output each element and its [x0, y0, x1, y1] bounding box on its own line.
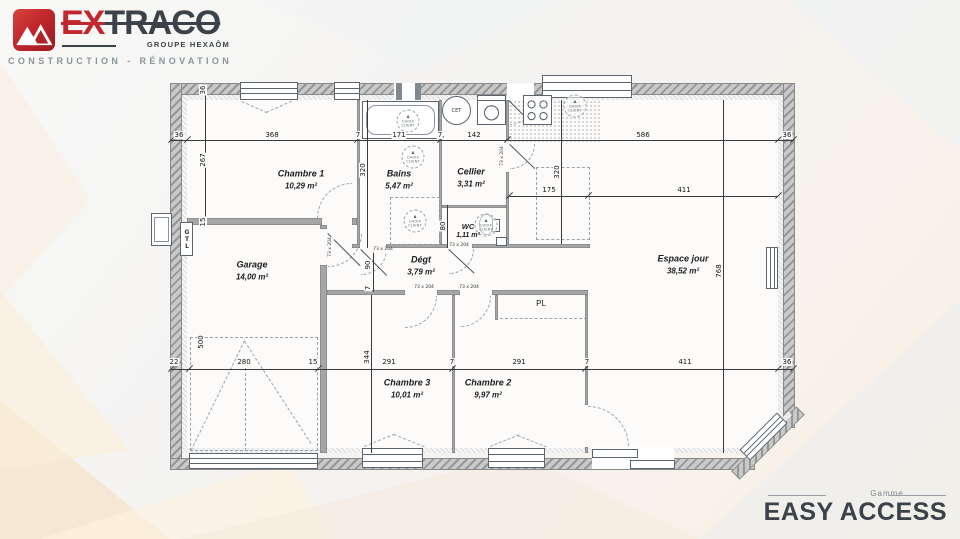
extraco-logo: EXTRACO GROUPE HEXAÔM CONSTRUCTION - RÉN…	[0, 0, 260, 75]
dim-label: 36	[782, 358, 793, 366]
gtl-box: GTL	[180, 222, 193, 256]
dim-label: 90	[364, 260, 372, 271]
wall-partition	[452, 295, 455, 453]
dim-line	[367, 100, 368, 248]
stove	[523, 95, 552, 125]
dim-label: 344	[363, 349, 371, 364]
dim-label: 171	[391, 131, 406, 139]
dim-line	[561, 100, 562, 244]
dim-label: 411	[676, 186, 691, 194]
room-label-espace-jour: Espace jour38,52 m²	[657, 252, 708, 275]
room-label-bains: Bains5,47 m²	[385, 167, 413, 190]
dim-line	[371, 295, 372, 453]
wall-partition	[437, 290, 460, 295]
room-label-degt: Dégt3,79 m²	[407, 253, 435, 276]
dim-label: 291	[381, 358, 396, 366]
window	[240, 82, 298, 100]
logo-mark-icon	[13, 9, 55, 51]
closet-front-dashed	[495, 318, 587, 319]
client-choice-marker: ▲CHOIXCLIENT	[564, 95, 587, 118]
dim-line	[373, 248, 374, 292]
dim-label: 7	[355, 131, 361, 139]
garage-door	[189, 453, 318, 469]
garage-door-centerline	[245, 363, 246, 451]
range-line	[768, 495, 826, 496]
door-size-label: 73 x 204	[329, 237, 334, 257]
brand-text: EXTRACO	[61, 6, 220, 40]
wall-insulation	[182, 95, 187, 453]
wall-exterior-left	[170, 83, 182, 470]
client-choice-marker: ▲CHOIXCLIENT	[404, 210, 427, 233]
wall-partition	[352, 218, 357, 225]
dim-label: 175	[541, 186, 556, 194]
wall-partition	[495, 295, 498, 320]
dim-label: 7	[437, 131, 443, 139]
client-choice-marker: ▲CHOIXCLIENT	[397, 110, 420, 133]
washing-machine	[477, 95, 506, 125]
dim-label: 320	[553, 164, 561, 179]
electric-meter-inner	[154, 217, 169, 242]
door-size-label: 73 x 204	[449, 244, 469, 249]
dim-label: 411	[677, 358, 692, 366]
radiator	[766, 247, 778, 289]
wall-partition	[320, 265, 327, 453]
logo-divider-line	[62, 45, 116, 47]
wall-insulation	[778, 95, 783, 425]
wall-partition	[585, 295, 588, 405]
dim-label: 80	[439, 221, 447, 232]
door-size-label: 73 x 204	[501, 146, 506, 166]
wall-pier	[415, 83, 421, 100]
client-choice-marker: ▲CHOIXCLIENT	[402, 146, 425, 169]
door-size-label: 73 x 204	[373, 248, 393, 253]
dim-label: 368	[264, 131, 279, 139]
room-label-placard: PL	[536, 298, 546, 310]
wall-partition	[320, 225, 327, 229]
room-label-chambre-2: Chambre 29,97 m²	[465, 376, 512, 399]
duct-box	[496, 237, 507, 246]
dim-label: 22	[169, 358, 180, 366]
sliding-door-panel	[592, 449, 638, 458]
dim-label: 7	[364, 285, 372, 291]
range-name: EASY ACCESS	[764, 500, 947, 525]
range-line	[888, 495, 946, 496]
dim-label: 586	[635, 131, 650, 139]
dim-label: 15	[308, 358, 319, 366]
brand-prefix: EX	[61, 4, 104, 42]
dim-line	[171, 140, 794, 141]
range-banner: Gamme EASY ACCESS	[740, 482, 952, 532]
range-label: Gamme	[870, 490, 903, 498]
dim-line	[723, 100, 724, 453]
room-label-garage: Garage14,00 m²	[236, 258, 268, 281]
dim-line	[509, 196, 778, 197]
door-size-label: 73 x 204	[414, 286, 434, 291]
dim-label: 7	[449, 358, 455, 366]
wall-pier	[396, 83, 402, 100]
water-heater: CET	[442, 96, 471, 125]
group-text: GROUPE HEXAÔM	[120, 41, 230, 49]
window-bay	[542, 75, 632, 98]
dim-label: 15	[199, 217, 207, 228]
wall-partition	[472, 244, 590, 248]
room-label-cellier: Cellier3,31 m²	[457, 165, 485, 188]
wall-partition	[585, 447, 588, 453]
dim-label: 320	[359, 162, 367, 177]
sliding-door-panel	[630, 460, 675, 469]
dim-label: 768	[715, 263, 723, 278]
dim-label: 36	[782, 131, 793, 139]
dim-line	[447, 205, 448, 248]
room-label-chambre-3: Chambre 310,01 m²	[384, 376, 431, 399]
wall-partition	[442, 205, 506, 208]
window	[488, 448, 545, 468]
dim-label: 500	[197, 334, 205, 349]
dim-line	[171, 369, 793, 370]
floor-plan: CET GTL ▲CHOIXCLIENT ▲CHOIXCLIENT ▲CHOIX…	[0, 0, 960, 539]
tagline: CONSTRUCTION - RÉNOVATION	[8, 57, 232, 66]
brand-suffix: TRACO	[104, 4, 220, 42]
dim-label: 291	[511, 358, 526, 366]
room-label-chambre-1: Chambre 110,29 m²	[278, 167, 325, 190]
wall-partition	[506, 100, 509, 140]
kitchen-island	[536, 167, 590, 240]
room-label-wc: WC1,11 m²	[456, 221, 480, 241]
dim-label: 36	[199, 85, 207, 96]
door-size-label: 73 x 204	[459, 286, 479, 291]
window	[334, 82, 360, 100]
dim-label: 7	[584, 358, 590, 366]
wall-partition	[187, 218, 322, 225]
dim-label: 280	[236, 358, 251, 366]
dim-label: 36	[174, 131, 185, 139]
wall-partition	[492, 290, 588, 295]
dim-label: 142	[466, 131, 481, 139]
dim-label: 267	[199, 152, 207, 167]
